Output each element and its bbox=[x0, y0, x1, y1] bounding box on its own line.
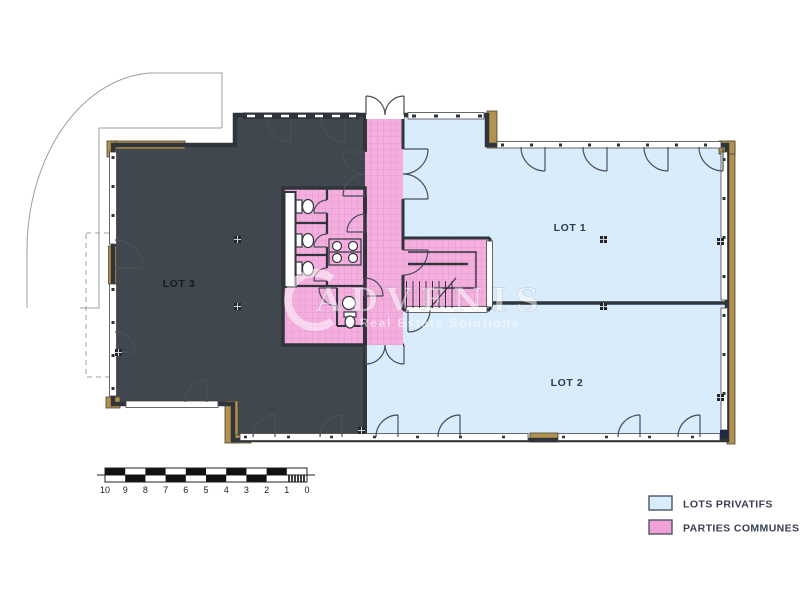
column-marker bbox=[600, 236, 607, 243]
legend-swatch-parties-communes bbox=[649, 520, 672, 534]
scale-tick-label: 6 bbox=[183, 485, 188, 495]
lot3-label: LOT 3 bbox=[163, 278, 196, 290]
scale-tick-label: 8 bbox=[143, 485, 148, 495]
column-marker bbox=[358, 427, 365, 434]
column-marker bbox=[234, 236, 241, 243]
column-marker bbox=[720, 430, 728, 438]
scale-tick-label: 9 bbox=[123, 485, 128, 495]
scale-tick-label: 4 bbox=[224, 485, 229, 495]
lot2-label: LOT 2 bbox=[551, 377, 584, 389]
watermark: ADVENIS Real Estate Solutions bbox=[288, 273, 548, 330]
scale-bar-numbers: 10 9 8 7 6 5 4 3 2 1 0 bbox=[100, 485, 310, 495]
legend: LOTS PRIVATIFS PARTIES COMMUNES bbox=[649, 496, 799, 535]
scale-tick-label: 1 bbox=[284, 485, 289, 495]
wc-1 bbox=[296, 200, 314, 214]
watermark-brand: ADVENIS bbox=[315, 281, 548, 319]
column-marker bbox=[115, 349, 122, 356]
legend-label-parties-communes: PARTIES COMMUNES bbox=[683, 523, 799, 535]
scale-bar: 10 9 8 7 6 5 4 3 2 1 0 bbox=[97, 468, 315, 495]
lot1-label: LOT 1 bbox=[554, 222, 587, 234]
floor-plan-canvas: LOT 1 LOT 2 LOT 3 ADVENIS Real Estate So… bbox=[0, 0, 800, 600]
legend-swatch-lots-privatifs bbox=[649, 496, 672, 510]
scale-bar-hatch bbox=[289, 475, 304, 482]
column-marker bbox=[717, 394, 724, 401]
column-marker bbox=[600, 303, 607, 310]
scale-tick-label: 10 bbox=[100, 485, 110, 495]
floor-plan-page: LOT 1 LOT 2 LOT 3 ADVENIS Real Estate So… bbox=[0, 0, 800, 600]
legend-label-lots-privatifs: LOTS PRIVATIFS bbox=[683, 499, 773, 511]
building-regions bbox=[113, 115, 727, 440]
duct-shaft bbox=[285, 192, 296, 287]
column-marker bbox=[234, 303, 241, 310]
scale-tick-label: 3 bbox=[244, 485, 249, 495]
scale-tick-label: 5 bbox=[203, 485, 208, 495]
wc-2 bbox=[296, 234, 314, 248]
watermark-tagline: Real Estate Solutions bbox=[360, 316, 521, 330]
scale-tick-label: 0 bbox=[304, 485, 309, 495]
scale-tick-label: 7 bbox=[163, 485, 168, 495]
scale-tick-label: 2 bbox=[264, 485, 269, 495]
column-marker bbox=[717, 238, 724, 245]
